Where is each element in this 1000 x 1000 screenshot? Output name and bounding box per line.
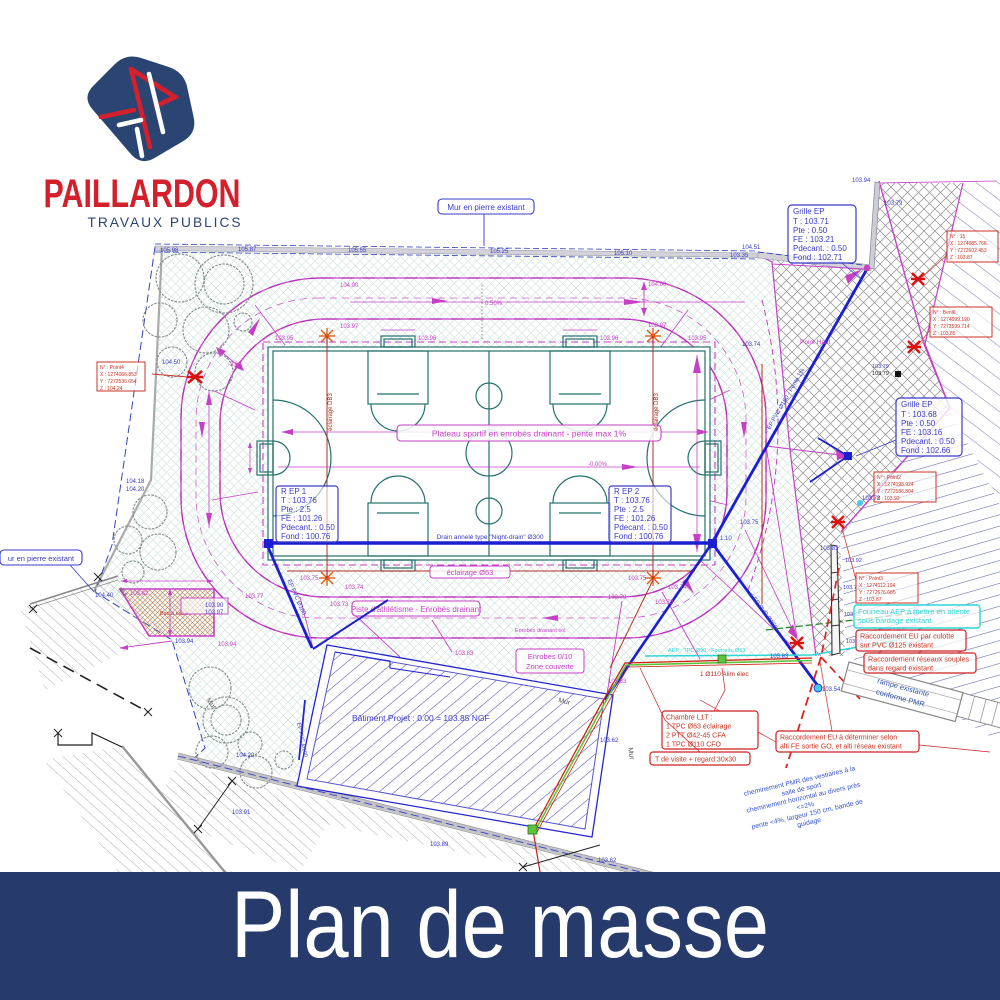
svg-text:103.62: 103.62 [600,738,619,744]
svg-text:103.94: 103.94 [175,639,194,645]
svg-text:Y : 7272602.453: Y : 7272602.453 [950,248,987,254]
svg-text:Raccordement réseaux souples: Raccordement réseaux souples [868,655,969,664]
svg-text:103.73: 103.73 [655,600,674,606]
svg-text:103.74: 103.74 [742,342,761,348]
svg-text:Pte : 0.50: Pte : 0.50 [793,226,828,235]
svg-text:N° : Point2: N° : Point2 [877,475,901,481]
svg-text:N° : Beni6: N° : Beni6 [933,310,956,316]
svg-text:Bâtiment Projet : 0.00 = 103.8: Bâtiment Projet : 0.00 = 103.85 NGF [352,713,490,723]
svg-text:2 PTT Ø42-45 CFA: 2 PTT Ø42-45 CFA [666,733,726,740]
svg-text:Fond : 100.76: Fond : 100.76 [281,532,331,541]
svg-text:104.40: 104.40 [95,593,114,599]
svg-text:Z : 104.24: Z : 104.24 [100,386,123,392]
svg-text:Zone couverte: Zone couverte [526,662,574,671]
svg-text:104.50: 104.50 [162,360,181,366]
svg-text:103.75: 103.75 [300,576,319,582]
svg-text:105.87: 105.87 [238,247,257,253]
svg-text:Enrobés 0/10: Enrobés 0/10 [528,652,573,661]
svg-text:103.97: 103.97 [205,610,224,616]
svg-text:Enrobés drainant sol: Enrobés drainant sol [515,628,565,634]
svg-text:Raccordement EU à déterminer s: Raccordement EU à déterminer selon [780,735,897,742]
svg-text:103.79: 103.79 [884,201,903,207]
svg-text:104.18: 104.18 [126,479,145,485]
svg-text:dans regard existant: dans regard existant [868,664,933,673]
svg-text:FE : 103.16: FE : 103.16 [901,428,943,437]
svg-text:Grille EP: Grille EP [793,207,825,216]
svg-text:T : 103.68: T : 103.68 [901,410,937,419]
svg-text:1 TPC Ø110 CFO: 1 TPC Ø110 CFO [666,742,722,749]
svg-text:103.95: 103.95 [688,336,707,342]
svg-text:éclairage Ø63: éclairage Ø63 [447,568,494,577]
svg-text:Y : 7272586.804: Y : 7272586.804 [877,489,914,495]
svg-text:103.74: 103.74 [668,585,687,591]
svg-text:T : 103.76: T : 103.76 [281,496,317,505]
svg-text:105.10: 105.10 [614,251,633,257]
svg-text:104.51: 104.51 [742,245,761,251]
svg-text:FE : 103.21: FE : 103.21 [793,235,835,244]
svg-text:-0.00%: -0.00% [588,462,608,468]
svg-text:103.83: 103.83 [770,654,789,660]
svg-text:103.82: 103.82 [130,591,149,597]
svg-text:103.96: 103.96 [600,336,619,342]
svg-text:103.90: 103.90 [205,603,224,609]
svg-text:Point Haut: Point Haut [800,339,831,346]
svg-text:105.25: 105.25 [490,249,509,255]
svg-text:Fourreau AEP à mettre en atten: Fourreau AEP à mettre en attente [858,607,970,616]
svg-text:X : 1274085.768: X : 1274085.768 [950,241,987,247]
svg-text:103.62: 103.62 [598,858,617,864]
svg-text:Fond : 102.66: Fond : 102.66 [901,446,951,455]
svg-text:105.98: 105.98 [160,248,179,254]
svg-text:0.50%: 0.50% [485,301,503,307]
svg-text:Pte : 2.5: Pte : 2.5 [614,505,644,514]
svg-text:PAILLARDON: PAILLARDON [44,172,241,216]
svg-text:éclairage DB3: éclairage DB3 [328,392,334,430]
svg-text:103.77: 103.77 [245,594,264,600]
svg-text:Mur en pierre existant: Mur en pierre existant [447,203,525,212]
svg-text:T : 103.71: T : 103.71 [793,217,829,226]
svg-text:Y : 7272536.654: Y : 7272536.654 [100,379,137,385]
svg-text:N° : Point3: N° : Point3 [859,576,883,582]
svg-text:103.95: 103.95 [275,336,294,342]
svg-text:FE : 101.26: FE : 101.26 [614,514,656,523]
svg-text:103.83: 103.83 [455,651,474,657]
svg-text:Drain annelé type "Night-drain: Drain annelé type "Night-drain" Ø300 [437,534,544,541]
svg-text:Chambre L1T :: Chambre L1T : [666,715,713,722]
svg-text:103.79: 103.79 [872,371,889,377]
svg-text:N° : Point4: N° : Point4 [100,365,124,371]
svg-text:103.94: 103.94 [852,178,871,184]
svg-text:Raccordement EU par culotte: Raccordement EU par culotte [860,632,954,641]
svg-text:Pdecant. : 0.50: Pdecant. : 0.50 [793,244,847,253]
svg-text:103.35: 103.35 [730,253,749,259]
svg-text:Fond : 102.71: Fond : 102.71 [793,253,843,262]
svg-text:AEP : TPC Ø90 - Fourreau Ø63: AEP : TPC Ø90 - Fourreau Ø63 [668,648,745,654]
svg-text:Plateau sportif en enrobés dra: Plateau sportif en enrobés drainant - pe… [432,429,627,439]
svg-text:Pdecant. : 0.50: Pdecant. : 0.50 [281,523,335,532]
svg-text:X : 1274198.924: X : 1274198.924 [877,482,914,488]
svg-text:105.55: 105.55 [348,248,367,254]
svg-text:103.91: 103.91 [232,810,251,816]
svg-text:sur PVC Ø125 existant: sur PVC Ø125 existant [860,641,933,650]
svg-text:103.97: 103.97 [340,324,359,330]
svg-text:103.89: 103.89 [430,842,449,848]
svg-text:1.10: 1.10 [720,536,732,542]
svg-text:Y : 7272599.714: Y : 7272599.714 [933,324,970,330]
svg-text:sous bardage existant: sous bardage existant [858,616,932,625]
svg-text:103.81: 103.81 [820,546,839,552]
svg-text:104.20: 104.20 [236,753,255,759]
svg-text:103.79: 103.79 [608,595,627,601]
svg-text:FE : 101.26: FE : 101.26 [281,514,323,523]
svg-text:103.54: 103.54 [822,687,841,693]
svg-text:Y : 7272676.685: Y : 7272676.685 [859,590,896,596]
svg-text:104.00: 104.00 [648,282,667,288]
svg-text:Grille EP: Grille EP [901,400,933,409]
svg-text:103.79: 103.79 [872,364,889,370]
svg-text:Z : 103.93: Z : 103.93 [877,496,900,502]
svg-text:104.00: 104.00 [340,283,359,289]
svg-text:éclairage DB3: éclairage DB3 [654,392,660,430]
svg-text:N° : 15: N° : 15 [950,234,966,240]
svg-text:X : 1274112.194: X : 1274112.194 [859,583,896,589]
svg-text:Pte : 2.5: Pte : 2.5 [281,505,311,514]
svg-text:T de visite + regard 30x30: T de visite + regard 30x30 [655,757,736,764]
svg-text:-3.66: -3.66 [228,362,242,368]
svg-text:X : 1274066.853: X : 1274066.853 [100,372,137,378]
svg-text:103.75: 103.75 [740,520,759,526]
svg-text:Pte : 0.50: Pte : 0.50 [901,419,936,428]
svg-text:103.78: 103.78 [862,496,881,502]
svg-text:ur en pierre existant: ur en pierre existant [8,554,75,563]
svg-text:103.74: 103.74 [345,585,364,591]
svg-text:Z : 103.87: Z : 103.87 [859,597,882,603]
svg-text:X : 1274099.190: X : 1274099.190 [933,317,970,323]
svg-text:1 Ø110 Alim élec: 1 Ø110 Alim élec [700,671,749,678]
svg-text:103.94: 103.94 [218,642,237,648]
svg-text:Pdecant. : 0.50: Pdecant. : 0.50 [901,437,955,446]
svg-text:T : 103.76: T : 103.76 [614,496,650,505]
svg-text:103.96: 103.96 [418,336,437,342]
svg-text:103.83: 103.83 [608,679,627,685]
svg-text:R EP 1: R EP 1 [281,487,307,496]
svg-text:103.97: 103.97 [648,323,667,329]
svg-text:104.20: 104.20 [126,487,145,493]
svg-text:R EP 2: R EP 2 [614,487,640,496]
svg-text:103.92: 103.92 [845,558,862,564]
svg-text:Plan de masse: Plan de masse [231,872,769,978]
svg-text:Z : 103.85: Z : 103.85 [933,331,956,337]
svg-text:TRAVAUX PUBLICS: TRAVAUX PUBLICS [88,214,243,230]
svg-text:Z : 103.87: Z : 103.87 [950,255,973,261]
svg-text:Fond : 100.76: Fond : 100.76 [614,532,664,541]
svg-text:Pdecant. : 0.50: Pdecant. : 0.50 [614,523,668,532]
svg-text:103.75: 103.75 [628,576,647,582]
svg-text:alti FE sortie GO, et alti rés: alti FE sortie GO, et alti réseau exista… [780,744,902,751]
svg-text:103.73: 103.73 [330,602,349,608]
